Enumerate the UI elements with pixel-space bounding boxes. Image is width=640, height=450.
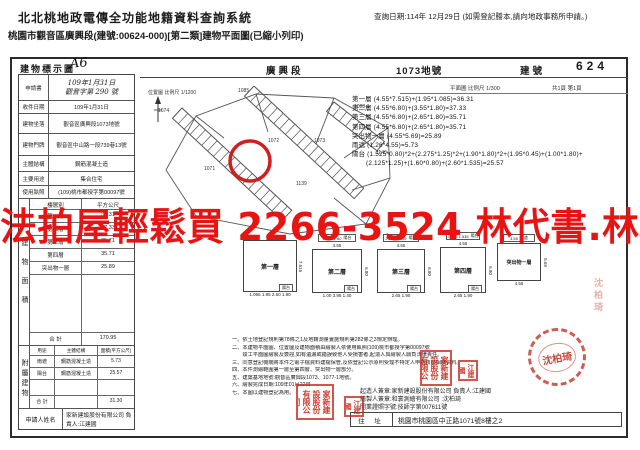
table-row: 雨遮 鋼筋混凝土造 5.73 (30, 356, 134, 368)
svg-text:1074: 1074 (158, 108, 169, 114)
highlight-circle (230, 141, 270, 181)
empty-rows (30, 275, 134, 333)
svg-text:1073: 1073 (314, 138, 325, 144)
svg-text:1072: 1072 (268, 138, 279, 144)
field-value: 109年1月31日觀音字第 290 號 (49, 75, 134, 100)
query-date: 查詢日期:114年 12月29日 (如需登記謄本,請向地政事務所申請。) (374, 11, 587, 22)
table-row: 陽台 鋼筋混凝土造 25.57 (30, 368, 134, 380)
table-row: 主體結構 鋼筋混凝土造 (19, 156, 134, 172)
field-label: 主要用途 (19, 172, 49, 185)
field-value: 鋼筋混凝土造 (49, 156, 134, 171)
table-row: 申請書 109年1月31日觀音字第 290 號 (19, 75, 134, 101)
scanned-building-plat-page: 北北桃地政電傳全功能地籍資料查詢系統 桃園市觀音區廣興段(建號:00624-00… (0, 0, 640, 450)
foreclosure-ad-watermark: 法拍屋輕鬆買 2266-3524 林代書.林經理 (0, 196, 625, 251)
parcel-number: 1073地號 (396, 63, 442, 77)
field-label: 收件日期 (19, 101, 49, 113)
map-scale-label: 位置圖 比例尺 1/1200 (148, 89, 196, 96)
signer-block: 起造人簽章:家新建設股份有限公司 負責人:江建國 繪製人簽章:和寰測繪有限公司 … (360, 388, 625, 412)
annex-total-row: 合 計 31.30 (30, 396, 134, 408)
company-seal: 家新建設股份有限公司 (296, 384, 334, 420)
applicant-label: 申請人姓名 (19, 409, 63, 429)
field-label: 建物坐落 (19, 114, 49, 133)
area-formulas: 第一層 (4.55*7.515)+(1.95*1.085)=36.31 第二層 … (352, 95, 628, 169)
table-row: 建物門牌 觀音區中山路一段739巷13號 (19, 134, 134, 156)
building-info-table: 申請書 109年1月31日觀音字第 290 號 收件日期 109年1月31日 建… (18, 74, 135, 430)
annex-section: 附屬建物 用途 主體結構 面積(平方公尺) 雨遮 鋼筋混凝土造 5.73 陽台 … (19, 346, 134, 409)
annex-header: 用途 主體結構 面積(平方公尺) (30, 346, 134, 356)
faint-side-seal: 沈柏琦 (592, 278, 605, 314)
address-value: 桃園市桃園區中正路1071號8樓之2 (393, 413, 621, 426)
applicant-row: 申請人姓名 家新建設股份有限公司 負責人:江建國 (19, 409, 134, 429)
field-value: 109年1月31日 (49, 101, 134, 113)
table-row: 收件日期 109年1月31日 (19, 101, 134, 114)
table-row: 主要用途 集合住宅 (19, 172, 134, 186)
svg-text:1085: 1085 (238, 88, 249, 94)
field-value: 集合住宅 (49, 172, 134, 185)
svg-text:1139: 1139 (296, 181, 307, 187)
annex-side-label: 附屬建物 (19, 346, 30, 408)
person-seal: 江建國 (458, 360, 478, 381)
document-subtitle: 桃園市觀音區廣興段(建號:00624-000)[第二類]建物平面圖(已縮小列印) (8, 28, 304, 42)
field-label: 申請書 (19, 75, 49, 100)
svg-text:1071: 1071 (204, 166, 215, 172)
handwritten-annotation: A6 (69, 55, 88, 71)
field-value: 觀音區廣興段1073地號 (49, 114, 134, 133)
empty-rows (30, 380, 134, 396)
subheader-rule (400, 93, 628, 94)
page-info: 共1頁 第1頁 (552, 84, 582, 92)
applicant-value: 家新建設股份有限公司 負責人:江建國 (63, 409, 134, 429)
building-number: 624 (576, 59, 608, 73)
table-row: 建物坐落 觀音區廣興段1073地號 (19, 114, 134, 134)
header-rule (140, 77, 628, 78)
floor-total-row: 合 計170.95 (30, 333, 134, 345)
system-title: 北北桃地政電傳全功能地籍資料查詢系統 (18, 9, 252, 26)
plan-scale-label: 平面圖 比例尺 1/300 (450, 84, 500, 92)
company-seal: 家新建設股份有限公司 (420, 350, 452, 386)
field-label: 建物門牌 (19, 134, 49, 155)
table-row: 突出物一層25.89 (30, 262, 134, 275)
building-number-label: 建號 (520, 63, 545, 77)
field-label: 主體結構 (19, 156, 49, 171)
field-value: 觀音區中山路一段739巷13號 (49, 134, 134, 155)
person-seal: 江建國 (344, 396, 364, 417)
address-row: 住 址 桃園市桃園區中正路1071號8樓之2 (350, 412, 622, 427)
section-name: 廣興段 (266, 63, 304, 77)
